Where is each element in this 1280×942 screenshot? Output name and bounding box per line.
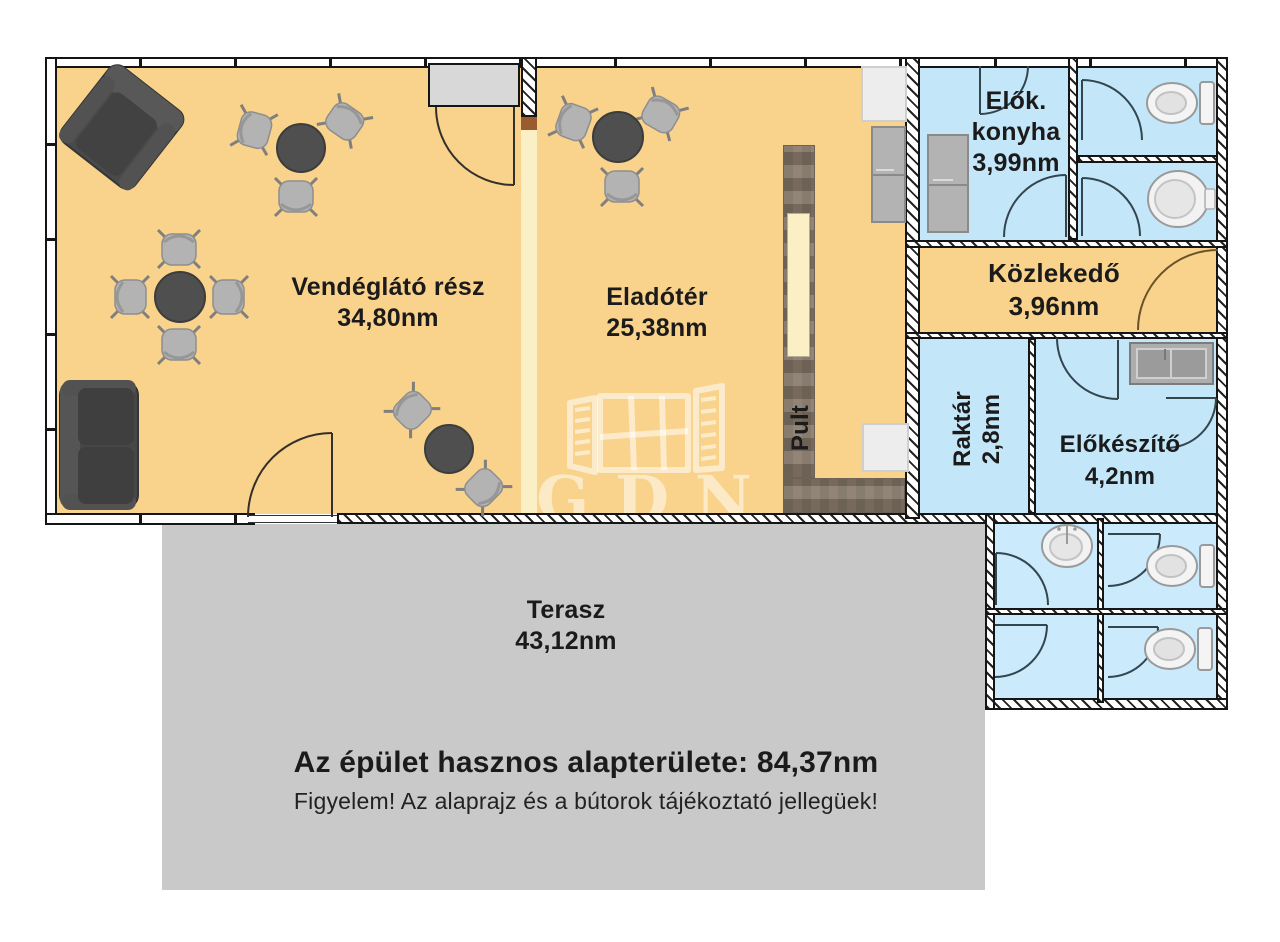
room-wc2-floor	[1078, 163, 1218, 240]
room-name: Raktár	[948, 369, 977, 489]
room-name: Terasz	[416, 595, 716, 626]
wall-segment	[45, 57, 1228, 68]
room-c-floor	[990, 614, 1097, 700]
room-name: Elők.	[946, 86, 1086, 117]
disclaimer-text: Figyelem! Az alaprajz és a bútorok tájék…	[236, 787, 936, 815]
wall-segment	[521, 57, 537, 117]
room-area: 43,12nm	[416, 626, 716, 657]
room-area: 34,80nm	[238, 303, 538, 334]
room-area: 2,8nm	[977, 369, 1006, 489]
room-name: Közlekedő	[904, 257, 1204, 290]
counter	[783, 478, 905, 513]
room-wc1-floor	[1078, 68, 1218, 155]
wall-segment	[45, 57, 57, 525]
counter-label: Pult	[788, 388, 814, 468]
room-label-vendeglato: Vendéglátó rész 34,80nm	[238, 272, 538, 334]
wall-segment	[1078, 155, 1218, 163]
room-b-floor	[1103, 522, 1218, 608]
room-name: Előkészítő	[1020, 429, 1220, 461]
room-label-eladoter: Eladótér 25,38nm	[507, 282, 807, 344]
floor-plan: GDN	[0, 0, 1280, 942]
watermark-brand: GDN	[512, 462, 802, 535]
terrace-label: Terasz 43,12nm	[416, 595, 716, 657]
room-name: Eladótér	[507, 282, 807, 313]
room-label-raktar: Raktár 2,8nm	[948, 369, 1006, 489]
room-d-floor	[1103, 614, 1218, 700]
terrace-area	[162, 524, 985, 890]
room-area: 25,38nm	[507, 313, 807, 344]
total-area-text: Az épület hasznos alapterülete: 84,37nm	[236, 746, 936, 780]
entrance-window	[428, 63, 520, 107]
room-a-floor	[990, 522, 1097, 608]
wall-segment	[45, 513, 255, 525]
room-area: 3,96nm	[904, 290, 1204, 323]
room-area: 4,2nm	[1020, 461, 1220, 493]
wall-segment	[985, 608, 1228, 615]
wall-segment	[905, 240, 1228, 248]
wall-segment	[905, 332, 1228, 339]
room-label-kozlekedo: Közlekedő 3,96nm	[904, 257, 1204, 323]
room-label-konyha: Elők. konyha 3,99nm	[946, 86, 1086, 179]
room-area: 3,99nm	[946, 148, 1086, 179]
wall-segment	[337, 513, 1228, 524]
partition-post	[521, 117, 537, 130]
door-opening	[248, 515, 337, 523]
room-name: Vendéglátó rész	[238, 272, 538, 303]
room-label-elokeszito: Előkészítő 4,2nm	[1020, 429, 1220, 493]
wall-segment	[985, 698, 1228, 710]
room-name: konyha	[946, 117, 1086, 148]
